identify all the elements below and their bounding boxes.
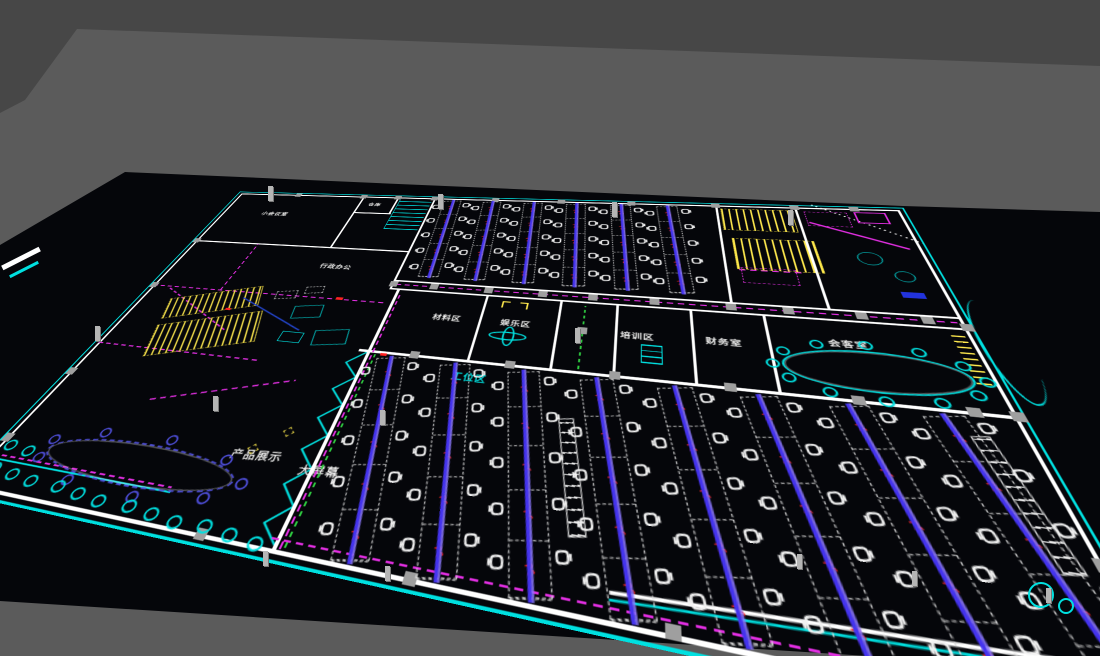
chair-icon <box>408 488 421 500</box>
chair-icon <box>458 216 467 220</box>
chair-icon <box>462 203 470 207</box>
chair-icon <box>588 270 597 276</box>
chair-icon <box>759 496 778 509</box>
chair-icon <box>352 399 364 408</box>
chair-icon <box>500 218 508 223</box>
column-marker <box>782 307 795 314</box>
chair-icon <box>493 417 504 427</box>
chair-icon <box>699 393 714 403</box>
chair-icon <box>454 266 464 272</box>
chair-icon <box>785 402 802 412</box>
chair-icon <box>654 278 664 284</box>
chair-icon <box>588 206 596 211</box>
chair-icon <box>554 222 562 227</box>
room-label-small-meeting: 小会议室 <box>260 211 290 217</box>
desk-outline <box>274 290 299 299</box>
column-marker <box>483 287 493 293</box>
column-marker <box>577 327 588 334</box>
chair-icon <box>492 457 504 468</box>
column-marker <box>588 294 598 301</box>
chair-icon <box>574 469 588 481</box>
chair-icon <box>640 273 650 279</box>
wall <box>689 311 698 385</box>
column-marker <box>538 291 548 297</box>
chair-icon <box>379 518 393 531</box>
chair-icon <box>635 222 644 227</box>
column-marker <box>1091 558 1100 576</box>
chair-icon <box>407 362 418 370</box>
chair-icon <box>401 537 415 551</box>
chair-icon <box>652 259 662 265</box>
column-marker <box>429 284 439 290</box>
chair-icon <box>600 240 609 245</box>
chair-icon <box>687 240 697 245</box>
chair-icon <box>941 474 964 487</box>
column-marker <box>431 197 439 201</box>
chair-icon <box>839 461 859 473</box>
chair-icon <box>555 550 570 565</box>
chair-icon <box>432 205 440 209</box>
chair-icon <box>639 255 649 261</box>
chair-icon <box>600 224 608 229</box>
desk-row: PCPCPCPCPC <box>415 364 470 579</box>
line-green-dashed <box>577 306 586 369</box>
desk-row: PCPCPCPCPC <box>508 371 553 599</box>
desk: PC <box>1079 647 1100 656</box>
wall <box>329 197 365 249</box>
chair-icon <box>449 246 458 251</box>
chair-icon <box>761 588 783 605</box>
cad-3d-viewport[interactable]: 小会议室 仓库 行政办公 材料区 娱乐区 培训区 财务室 会客室 产品展示 大屏… <box>0 0 1100 656</box>
chair-icon <box>650 242 660 247</box>
chair-icon <box>538 268 547 274</box>
chair-icon <box>473 369 484 378</box>
chair-icon <box>876 395 896 407</box>
chair-icon <box>588 236 596 241</box>
chair-icon <box>471 403 482 412</box>
marker-red <box>380 353 388 356</box>
chair-icon <box>779 551 800 567</box>
chair-icon <box>545 205 553 209</box>
desk-row: PCPCPCPCPC <box>656 206 695 293</box>
chair-icon <box>817 417 835 428</box>
room-label-materials: 材料区 <box>431 312 463 323</box>
chair-icon <box>360 366 371 374</box>
chair-icon <box>691 258 702 264</box>
bracket-marker <box>501 301 511 308</box>
chair-icon <box>646 211 655 216</box>
ceiling-fan-icon <box>486 325 530 348</box>
desk-outline-cyan <box>277 331 305 343</box>
shelf-icon <box>383 199 432 230</box>
chair-icon <box>808 340 825 350</box>
desk-row: PCPCPCPCPC <box>562 204 586 286</box>
chair-icon <box>510 221 518 226</box>
desk-outline-cyan <box>290 305 324 319</box>
chair-icon <box>970 566 997 583</box>
chair-icon <box>688 593 708 610</box>
chair-icon <box>97 427 115 438</box>
column-marker <box>920 316 936 324</box>
marker-red <box>225 308 232 310</box>
chair-icon <box>414 445 427 456</box>
desk-outline-cyan <box>310 329 350 345</box>
chair-icon <box>546 412 558 422</box>
chair-icon <box>894 570 919 587</box>
chair-icon <box>588 253 597 259</box>
chair-icon <box>469 441 481 452</box>
lounge-chair-icon <box>2 467 23 481</box>
chair-icon <box>851 546 874 562</box>
chair-icon <box>542 234 551 239</box>
chair-icon <box>549 452 562 463</box>
lounge-chair-icon <box>47 479 69 494</box>
chair-icon <box>675 533 693 548</box>
desk-outline <box>304 286 325 294</box>
chair-icon <box>643 513 659 527</box>
chair-icon <box>388 471 401 482</box>
chair-icon <box>774 346 790 356</box>
chair-icon <box>637 238 646 243</box>
wall <box>196 240 410 252</box>
chair-icon <box>648 226 657 231</box>
chair-icon <box>468 219 477 224</box>
chair-icon <box>742 449 759 461</box>
column-marker <box>360 195 369 199</box>
lounge-chair-icon <box>163 514 185 531</box>
chair-icon <box>497 233 506 238</box>
chair-icon <box>550 272 559 278</box>
furniture-outline-magenta <box>853 212 891 224</box>
line-magenta-dashed <box>220 244 259 290</box>
marker-red <box>335 297 343 300</box>
chair-icon <box>555 208 563 212</box>
column-marker <box>725 303 737 310</box>
column-marker <box>557 200 565 204</box>
column-marker <box>665 623 682 643</box>
chair-icon <box>968 390 991 403</box>
column-marker <box>848 207 860 212</box>
chair-icon <box>975 423 998 434</box>
chair-icon <box>164 434 181 446</box>
chair-icon <box>471 206 479 210</box>
chair-icon <box>463 234 472 239</box>
column-marker <box>851 395 868 405</box>
chair-icon <box>410 264 420 269</box>
chair-icon <box>601 257 610 263</box>
room-label-finance: 财务室 <box>705 335 743 349</box>
chair-icon <box>570 427 583 437</box>
chair-icon <box>424 374 435 383</box>
furniture-magenta <box>809 222 910 250</box>
diamond-marker <box>283 427 294 437</box>
chair-icon <box>543 219 551 224</box>
chair-icon <box>976 528 1002 543</box>
room-label-storage: 仓库 <box>367 201 383 206</box>
chair-icon <box>232 476 250 490</box>
chair-icon <box>579 517 594 531</box>
column-marker <box>389 281 399 287</box>
chair-icon <box>493 381 504 390</box>
wall <box>466 296 488 361</box>
chair-icon <box>421 232 430 237</box>
column-marker <box>504 360 516 368</box>
chair-icon <box>467 484 480 496</box>
column-marker <box>711 203 720 207</box>
chair-icon <box>588 221 596 226</box>
chair-icon <box>552 498 566 511</box>
chair-icon <box>634 464 649 476</box>
chair-icon <box>503 204 511 208</box>
wall <box>549 301 563 369</box>
chair-icon <box>626 422 640 432</box>
chair-icon <box>618 385 631 394</box>
chair-icon <box>804 444 823 456</box>
chair-icon <box>454 231 463 236</box>
chair-icon <box>653 437 668 448</box>
chair-icon <box>490 265 499 271</box>
chair-icon <box>644 398 658 408</box>
chair-icon <box>401 394 413 403</box>
chair-icon <box>742 529 761 544</box>
chair-icon <box>493 248 502 253</box>
chair-icon <box>904 456 926 468</box>
chair-icon <box>395 431 407 441</box>
chair-icon <box>552 254 561 260</box>
wall <box>353 212 391 214</box>
chair-icon <box>934 507 958 521</box>
chair-icon <box>726 477 744 489</box>
chair-icon <box>490 554 504 569</box>
chair-icon <box>513 207 521 211</box>
chair-icon <box>585 573 601 589</box>
chair-icon <box>501 269 510 275</box>
cabinet-icon <box>641 344 663 365</box>
lounge-chair-icon <box>67 486 89 501</box>
chair-icon <box>826 491 847 504</box>
line-magenta-dashed <box>149 380 295 400</box>
room-label-training: 培训区 <box>620 330 655 343</box>
lounge-chair-icon <box>0 461 5 474</box>
chair-icon <box>892 271 918 283</box>
chair-icon <box>194 491 213 505</box>
chair-icon <box>420 407 432 416</box>
desk-row: PCPCPCPCPC <box>580 379 658 621</box>
chair-icon <box>332 476 346 487</box>
furniture-blue <box>900 292 927 299</box>
chair-icon <box>544 377 555 386</box>
chair-icon <box>320 522 335 535</box>
desk-row: PCPCPCPCPC <box>512 203 543 283</box>
lounge-chair-icon <box>20 474 42 488</box>
chair-icon <box>342 435 355 445</box>
chair-icon <box>912 428 933 439</box>
chair-icon <box>464 533 478 547</box>
lounge-chair-icon <box>194 518 216 535</box>
chair-icon <box>864 512 886 526</box>
chair-icon <box>663 482 679 494</box>
chair-icon <box>764 357 780 368</box>
chair-icon <box>684 224 694 229</box>
lounge-chair-icon <box>140 506 162 522</box>
fan-blade <box>500 326 517 346</box>
desk-row: PCPCPCPCPC <box>610 205 638 289</box>
chair-icon <box>878 412 898 423</box>
chair-icon <box>634 208 643 213</box>
room-label-admin: 行政办公 <box>318 262 353 271</box>
column-marker <box>854 312 869 320</box>
chair-icon <box>416 247 425 252</box>
wall <box>762 316 782 394</box>
column-marker <box>724 382 737 392</box>
lounge-chair-icon <box>118 498 140 514</box>
desk-row: PCPCPCPCPC <box>464 202 502 280</box>
wall <box>612 305 619 376</box>
chair-icon <box>504 252 513 257</box>
chair-icon <box>540 250 549 255</box>
chair-icon <box>566 389 578 398</box>
chair-icon <box>553 238 562 243</box>
chair-icon <box>681 209 690 214</box>
chair-icon <box>727 407 743 417</box>
furniture-outline-magenta <box>804 212 854 228</box>
chair-icon <box>880 611 906 630</box>
column-marker <box>965 407 985 418</box>
chair-icon <box>491 502 504 515</box>
column-marker <box>1008 411 1029 422</box>
chair-icon <box>459 250 468 255</box>
furniture-outline-magenta <box>741 267 801 286</box>
stairs-icon <box>720 209 798 233</box>
bracket-marker <box>519 302 529 309</box>
column-marker <box>789 205 800 210</box>
lounge-chair-icon <box>88 493 110 508</box>
chair-icon <box>711 433 727 444</box>
chair-icon <box>427 218 436 222</box>
chair-icon <box>1016 591 1046 609</box>
chair-icon <box>695 276 706 282</box>
column-marker <box>650 298 660 305</box>
chair-icon <box>444 262 454 268</box>
chair-icon <box>654 568 672 584</box>
chair-icon <box>600 209 608 214</box>
chair-icon <box>855 252 886 266</box>
chair-icon <box>601 275 610 281</box>
chair-icon <box>507 236 516 241</box>
